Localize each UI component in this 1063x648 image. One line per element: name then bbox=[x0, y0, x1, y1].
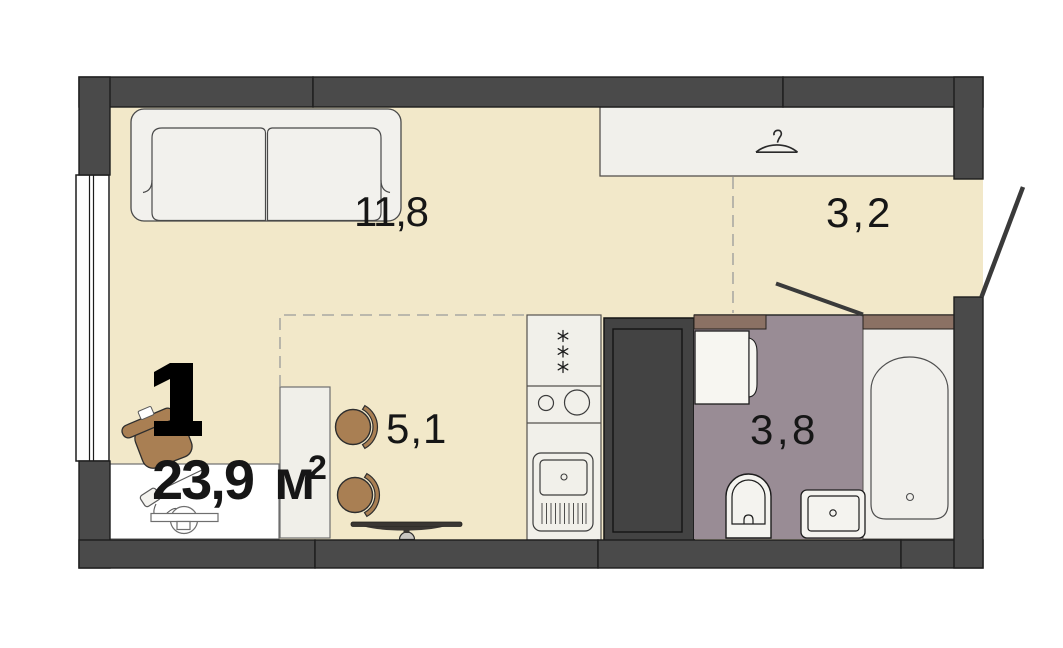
svg-text:2: 2 bbox=[308, 449, 327, 487]
svg-text:5,1: 5,1 bbox=[386, 405, 447, 452]
svg-text:23,9: 23,9 bbox=[152, 448, 254, 511]
svg-text:11,8: 11,8 bbox=[354, 188, 428, 235]
svg-text:3,2: 3,2 bbox=[826, 189, 893, 236]
svg-text:3,8: 3,8 bbox=[750, 406, 819, 453]
